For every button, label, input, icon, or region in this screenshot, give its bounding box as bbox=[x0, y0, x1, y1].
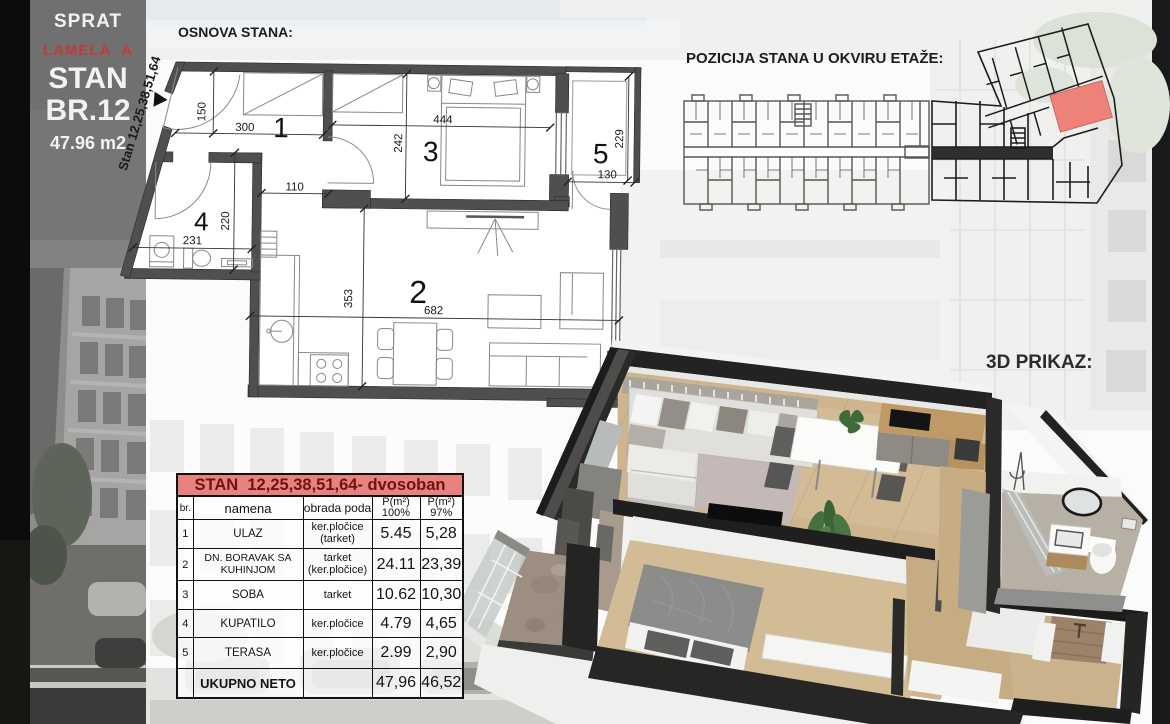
svg-text:4: 4 bbox=[194, 206, 209, 236]
svg-text:110: 110 bbox=[285, 181, 303, 193]
svg-text:3: 3 bbox=[423, 136, 439, 167]
svg-text:229: 229 bbox=[614, 129, 626, 148]
svg-text:130: 130 bbox=[598, 169, 617, 181]
svg-text:2: 2 bbox=[409, 274, 427, 310]
svg-text:1: 1 bbox=[273, 112, 289, 143]
svg-text:5: 5 bbox=[593, 138, 609, 169]
svg-text:220: 220 bbox=[220, 211, 232, 230]
svg-text:231: 231 bbox=[183, 235, 202, 247]
svg-text:444: 444 bbox=[433, 114, 453, 126]
svg-text:353: 353 bbox=[343, 289, 355, 308]
svg-text:300: 300 bbox=[235, 122, 254, 134]
svg-text:242: 242 bbox=[393, 133, 405, 152]
svg-text:150: 150 bbox=[196, 102, 208, 121]
